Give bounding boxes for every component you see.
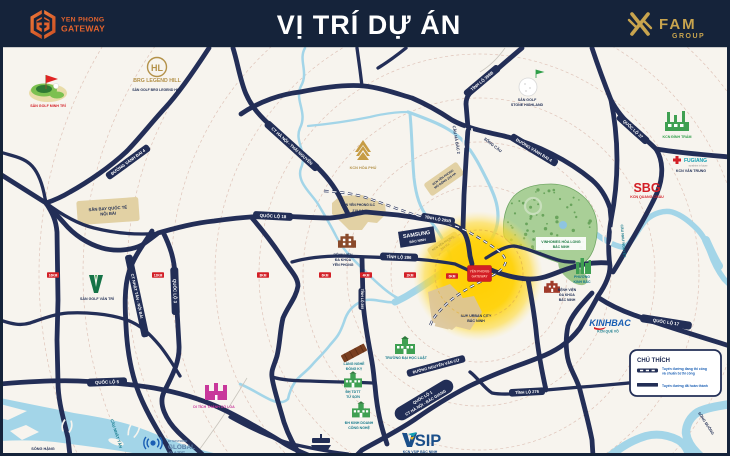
svg-text:TỈNH LỘ 286: TỈNH LỘ 286	[386, 254, 412, 260]
svg-text:ĐA KHOA: ĐA KHOA	[559, 293, 575, 297]
svg-text:HL: HL	[151, 63, 163, 73]
svg-text:Tuyến đường đang thi công: Tuyến đường đang thi công	[662, 367, 707, 371]
svg-text:TRƯỜNG ĐẠI HỌC LUẬT: TRƯỜNG ĐẠI HỌC LUẬT	[385, 355, 428, 360]
svg-text:FAM: FAM	[659, 16, 697, 33]
svg-text:STONE HIGHLAND: STONE HIGHLAND	[511, 103, 544, 107]
svg-text:Tuyến đường đã hoàn thành: Tuyến đường đã hoàn thành	[662, 384, 708, 388]
svg-text:8KM: 8KM	[260, 273, 267, 277]
svg-text:YÊN PHONG: YÊN PHONG	[332, 262, 353, 267]
svg-text:SIP: SIP	[415, 432, 442, 450]
svg-text:BY MASTERISE: BY MASTERISE	[168, 439, 188, 443]
svg-text:ĐA KHOA: ĐA KHOA	[335, 258, 352, 262]
svg-text:GATEWAY: GATEWAY	[61, 24, 105, 34]
svg-text:BỆNH VIỆN: BỆNH VIỆN	[333, 252, 353, 257]
svg-text:KCN HÒA PHÚ: KCN HÒA PHÚ	[350, 165, 377, 170]
svg-text:SBG: SBG	[633, 181, 660, 195]
svg-text:12KM: 12KM	[154, 273, 163, 277]
svg-text:QUỐC LỘ 5: QUỐC LỘ 5	[95, 379, 120, 385]
svg-text:0KM: 0KM	[449, 274, 456, 278]
svg-text:KCN QUẾ VÕ: KCN QUẾ VÕ	[597, 329, 619, 334]
svg-text:FUGIANG: FUGIANG	[684, 158, 707, 164]
svg-text:SÔNG HẬNG: SÔNG HẬNG	[31, 446, 54, 451]
svg-text:YÊN PHONG: YÊN PHONG	[470, 269, 490, 274]
svg-text:SÂN GOLF MINH TRÍ: SÂN GOLF MINH TRÍ	[30, 103, 67, 108]
svg-text:VINHOMES HÒA LONG: VINHOMES HÒA LONG	[541, 239, 581, 244]
svg-text:BRG LEGEND HILL: BRG LEGEND HILL	[133, 78, 181, 84]
svg-text:SÂN GOLF VÂN TRÌ: SÂN GOLF VÂN TRÌ	[80, 296, 114, 301]
svg-text:GATEWAY: GATEWAY	[471, 274, 488, 278]
svg-text:CÔNG NGHỆ: CÔNG NGHỆ	[348, 425, 370, 430]
svg-text:VỊ TRÍ DỰ ÁN: VỊ TRÍ DỰ ÁN	[277, 9, 461, 40]
svg-text:BẮC NINH: BẮC NINH	[467, 318, 485, 323]
svg-text:16KM: 16KM	[49, 273, 58, 277]
svg-text:TỪ SƠN: TỪ SƠN	[346, 394, 360, 399]
svg-text:KCN VÂN TRUNG: KCN VÂN TRUNG	[676, 168, 706, 173]
svg-text:QUỐC LỘ 3: QUỐC LỘ 3	[172, 279, 178, 304]
svg-text:GROUP: GROUP	[672, 33, 705, 40]
svg-text:TỈNH LỘ 295: TỈNH LỘ 295	[360, 289, 365, 309]
svg-text:YEN PHONG: YEN PHONG	[61, 17, 105, 24]
svg-text:2KM: 2KM	[407, 273, 414, 277]
svg-text:CHÚ THÍCH: CHÚ THÍCH	[637, 356, 670, 364]
svg-text:PHƯỜNG: PHƯỜNG	[574, 274, 590, 279]
svg-text:DI TÍCH THÀNH CỔ LOA: DI TÍCH THÀNH CỔ LOA	[193, 404, 235, 409]
svg-text:KCN ĐÌNH TRÁM: KCN ĐÌNH TRÁM	[663, 134, 692, 139]
svg-text:SÂN GOLF BRG LEGEND HILL: SÂN GOLF BRG LEGEND HILL	[132, 87, 182, 92]
svg-text:GLOBAL: GLOBAL	[168, 444, 195, 451]
svg-text:BỆNH VIỆN: BỆNH VIỆN	[558, 287, 577, 292]
svg-text:SUN URBAN CITY: SUN URBAN CITY	[461, 314, 492, 318]
svg-text:ĐH TDTT: ĐH TDTT	[346, 390, 362, 394]
svg-text:LÀNG NGHỀ: LÀNG NGHỀ	[344, 361, 366, 366]
svg-text:BẮC NINH: BẮC NINH	[553, 244, 570, 249]
svg-text:SÂN GOLF: SÂN GOLF	[518, 97, 537, 102]
svg-text:KINHBAC: KINHBAC	[589, 318, 631, 328]
svg-text:sunshine in future: sunshine in future	[689, 165, 709, 168]
svg-text:và chuẩn bị thi công: và chuẩn bị thi công	[662, 372, 695, 376]
svg-text:KINH BẮC: KINH BẮC	[573, 279, 591, 284]
svg-text:BẮC NINH: BẮC NINH	[559, 297, 576, 302]
svg-text:ĐH KINH DOANH: ĐH KINH DOANH	[345, 421, 374, 425]
svg-text:KCN QUANG CHÂU: KCN QUANG CHÂU	[630, 194, 664, 199]
svg-text:4KM: 4KM	[363, 273, 370, 277]
svg-text:6KM: 6KM	[322, 273, 329, 277]
svg-text:ĐỒNG KỴ: ĐỒNG KỴ	[346, 366, 363, 371]
